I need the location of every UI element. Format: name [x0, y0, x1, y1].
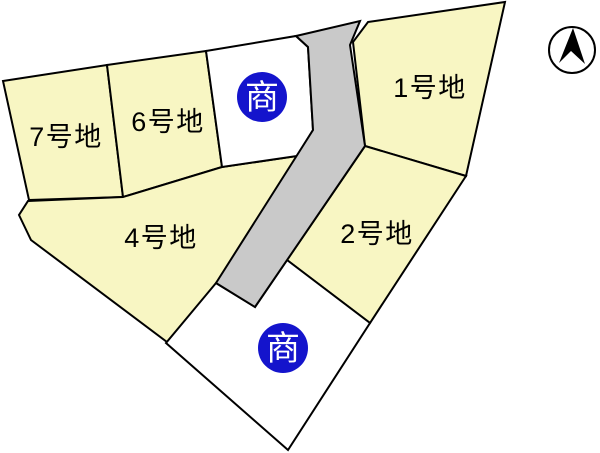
lot-2-label: 2号地 [340, 219, 414, 249]
plot-map-stage: 7号地6号地1号地2号地4号地 商商 [0, 0, 600, 453]
lot-7-label: 7号地 [29, 122, 103, 152]
plot-map-svg: 7号地6号地1号地2号地4号地 商商 [0, 0, 600, 453]
commercial-marker-label: 商 [245, 79, 279, 117]
lot-1-label: 1号地 [393, 73, 467, 103]
lot-6-label: 6号地 [131, 107, 205, 137]
commercial-marker-label: 商 [266, 330, 300, 368]
lot-4-label: 4号地 [124, 223, 198, 253]
compass [549, 27, 595, 73]
compass-layer [549, 27, 595, 73]
commercial-marker-1: 商 [237, 72, 287, 122]
commercial-marker-2: 商 [258, 323, 308, 373]
